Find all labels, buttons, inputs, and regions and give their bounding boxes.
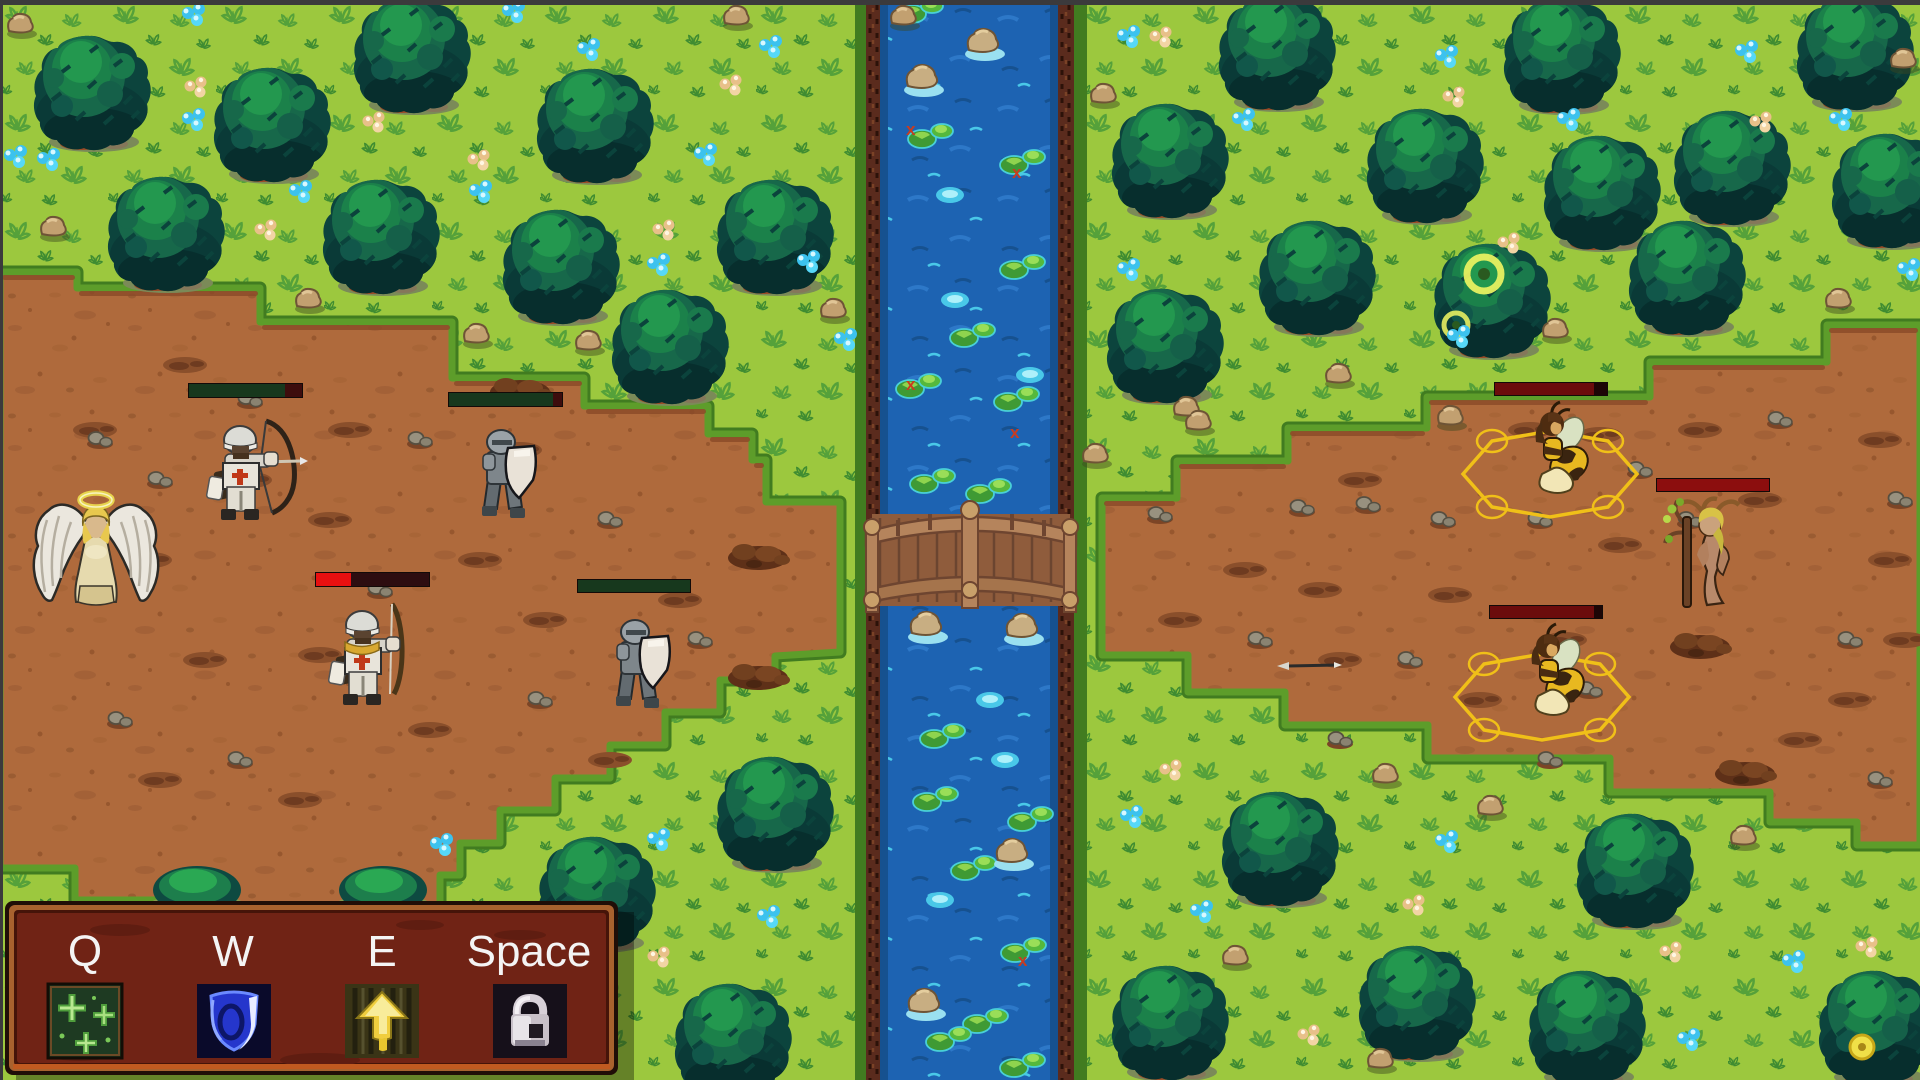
svg-text:x: x: [1010, 423, 1020, 442]
svg-text:W: W: [212, 927, 254, 976]
svg-text:E: E: [367, 927, 396, 976]
svg-text:Q: Q: [68, 927, 102, 976]
svg-text:x: x: [906, 375, 916, 394]
svg-text:x: x: [906, 120, 916, 139]
svg-text:Space: Space: [467, 927, 592, 976]
svg-text:x: x: [1012, 163, 1022, 182]
svg-text:x: x: [1018, 951, 1028, 970]
